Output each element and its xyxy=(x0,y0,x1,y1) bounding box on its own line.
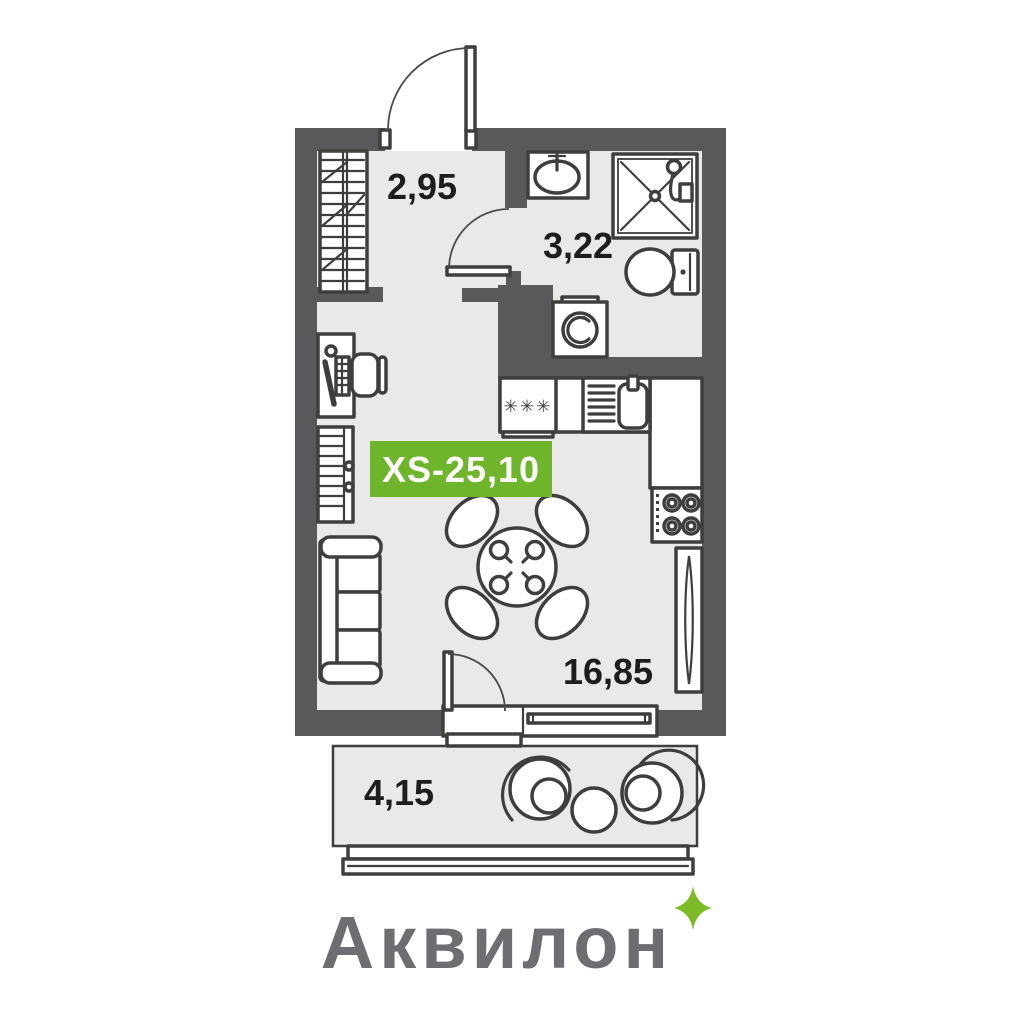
brand-name: Аквилон xyxy=(321,901,673,984)
sofa-icon xyxy=(320,537,381,683)
coffee-table-icon xyxy=(572,788,616,832)
kitchen-sink-icon xyxy=(583,376,650,432)
bath-sink-icon xyxy=(528,152,588,198)
shower-icon xyxy=(613,154,697,238)
hallway-area-label: 2,95 xyxy=(387,166,457,207)
wardrobe-icon xyxy=(320,151,367,292)
desk-icon xyxy=(318,334,354,417)
unit-badge-label: XS-25,10 xyxy=(382,449,540,490)
window-icon xyxy=(528,714,650,723)
bathroom-area-label: 3,22 xyxy=(543,225,613,266)
desk-chair-icon xyxy=(352,354,386,396)
kitchen-stars-label: ✳✳✳ xyxy=(504,397,553,416)
living-area-label: 16,85 xyxy=(563,651,653,692)
balcony-area-label: 4,15 xyxy=(364,772,434,813)
hob-icon xyxy=(652,488,702,542)
balcony-window-icon xyxy=(343,846,693,874)
brand-logo: Аквилон xyxy=(321,886,712,984)
kitchen-stars-icon: ✳✳✳ xyxy=(500,378,556,437)
unit-badge: XS-25,10 xyxy=(370,441,552,497)
shelving-icon xyxy=(318,427,353,522)
dining-table-icon xyxy=(478,528,556,606)
tall-cabinet-icon xyxy=(676,548,702,692)
floorplan-card: ✳✳✳ xyxy=(0,0,1024,1024)
washing-machine-icon xyxy=(553,297,607,357)
toilet-icon xyxy=(626,249,698,295)
floorplan: ✳✳✳ xyxy=(0,0,1024,1024)
